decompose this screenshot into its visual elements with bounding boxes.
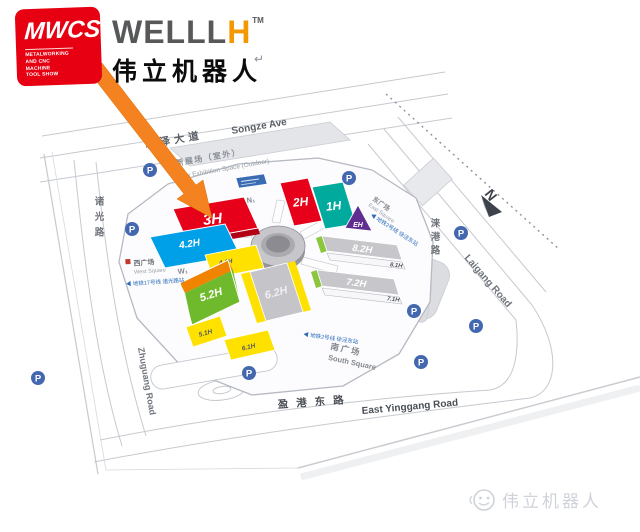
mwcs-logo-subtitle: METALWORKING AND CNC MACHINE TOOL SHOW <box>25 47 74 79</box>
svg-text:P: P <box>458 228 465 239</box>
yinggang-road-en: East Yinggang Road <box>361 398 458 417</box>
parking-icon: P <box>414 355 428 369</box>
svg-text:P: P <box>411 306 418 317</box>
compass: N <box>481 186 502 217</box>
yinggang-road-cn: 盈港东路 <box>276 393 352 411</box>
svg-text:P: P <box>473 321 480 332</box>
svg-text:2H: 2H <box>291 194 309 210</box>
laigang-road-cn: 涞港路 <box>429 217 441 258</box>
parking-icon: P <box>242 366 256 380</box>
zhuguang-road-cn: 诸光路 <box>93 195 106 242</box>
svg-text:EH: EH <box>353 222 364 229</box>
parking-icon: P <box>454 226 468 240</box>
svg-text:P: P <box>35 373 42 384</box>
svg-text:P: P <box>147 165 154 176</box>
mwcs-logo-title: MWCS <box>23 16 95 47</box>
parking-icon: P <box>469 319 483 333</box>
parking-icon: P <box>143 163 157 177</box>
article-image: 3H 4.2H 4.1H 2H 1H EH 8.2H 8.1H <box>0 0 640 532</box>
laigang-road-en: Laigang Road <box>462 253 514 310</box>
parking-icon: P <box>407 304 421 318</box>
brand-lockup: WELLLHTM 伟立机器人 <box>112 14 264 88</box>
robot-face-icon <box>470 490 494 510</box>
svg-text:P: P <box>129 224 136 235</box>
entrance-w1: W₁ <box>177 266 188 276</box>
brand-wordmark-accent: H <box>227 14 250 50</box>
parking-icon: P <box>31 371 45 385</box>
watermark: 伟立机器人 <box>470 490 602 511</box>
trademark-mark: TM <box>252 16 264 25</box>
entrance-n1: N₁ <box>246 195 256 205</box>
svg-text:1H: 1H <box>325 198 342 214</box>
parking-icon: P <box>125 222 139 236</box>
paragraph-return-icon: ↵ <box>254 52 264 66</box>
mwcs-logo: MWCS METALWORKING AND CNC MACHINE TOOL S… <box>15 7 103 87</box>
brand-chinese-name: 伟立机器人 <box>112 52 264 88</box>
brand-wordmark: WELLL <box>112 14 227 50</box>
west-square-icon <box>125 259 130 264</box>
svg-text:P: P <box>418 357 425 368</box>
svg-text:P: P <box>346 173 353 184</box>
parking-icon: P <box>342 171 356 185</box>
svg-text:P: P <box>246 368 253 379</box>
watermark-text: 伟立机器人 <box>502 492 602 511</box>
